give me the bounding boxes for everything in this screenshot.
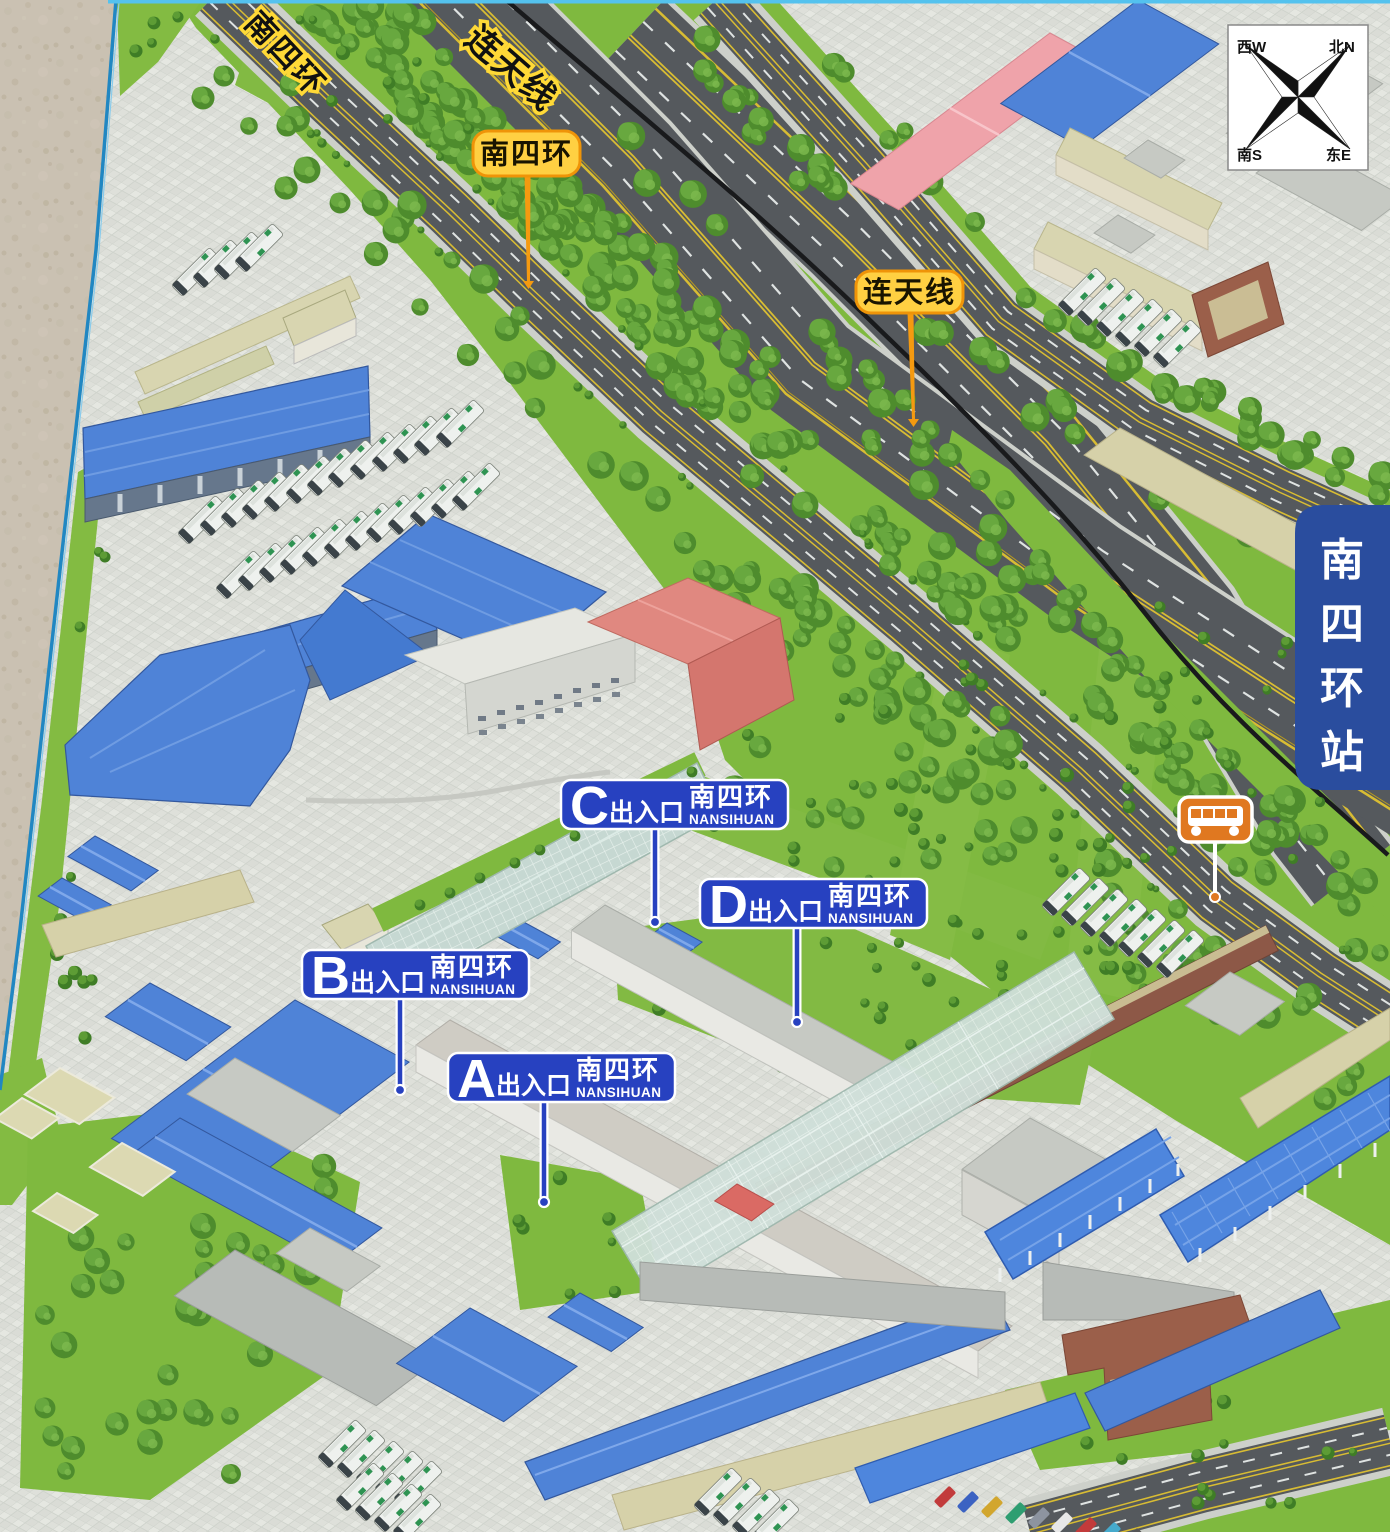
svg-text:出入口: 出入口 xyxy=(748,898,823,926)
svg-text:D: D xyxy=(709,875,748,935)
svg-text:A: A xyxy=(457,1049,496,1109)
svg-text:站: 站 xyxy=(1320,728,1364,777)
svg-text:南四环: 南四环 xyxy=(430,952,514,982)
svg-text:环: 环 xyxy=(1320,664,1364,713)
svg-text:西W: 西W xyxy=(1237,39,1267,56)
svg-text:出入口: 出入口 xyxy=(496,1072,571,1100)
svg-text:出入口: 出入口 xyxy=(609,799,684,827)
svg-text:北N: 北N xyxy=(1329,39,1355,56)
svg-text:四: 四 xyxy=(1320,600,1364,649)
svg-text:NANSIHUAN: NANSIHUAN xyxy=(430,982,516,997)
svg-text:NANSIHUAN: NANSIHUAN xyxy=(576,1085,662,1100)
svg-text:南四环: 南四环 xyxy=(576,1055,660,1085)
svg-text:出入口: 出入口 xyxy=(350,969,425,997)
svg-text:NANSIHUAN: NANSIHUAN xyxy=(828,911,914,926)
svg-text:东E: 东E xyxy=(1326,146,1351,164)
svg-text:连天线: 连天线 xyxy=(863,276,956,309)
svg-text:南: 南 xyxy=(1320,536,1364,585)
svg-text:C: C xyxy=(570,776,609,836)
svg-text:南S: 南S xyxy=(1237,146,1262,164)
svg-text:南四环: 南四环 xyxy=(828,881,912,911)
svg-text:南四环: 南四环 xyxy=(689,782,773,812)
svg-text:南四环: 南四环 xyxy=(480,138,573,171)
svg-text:B: B xyxy=(311,946,350,1006)
svg-text:NANSIHUAN: NANSIHUAN xyxy=(689,812,775,827)
